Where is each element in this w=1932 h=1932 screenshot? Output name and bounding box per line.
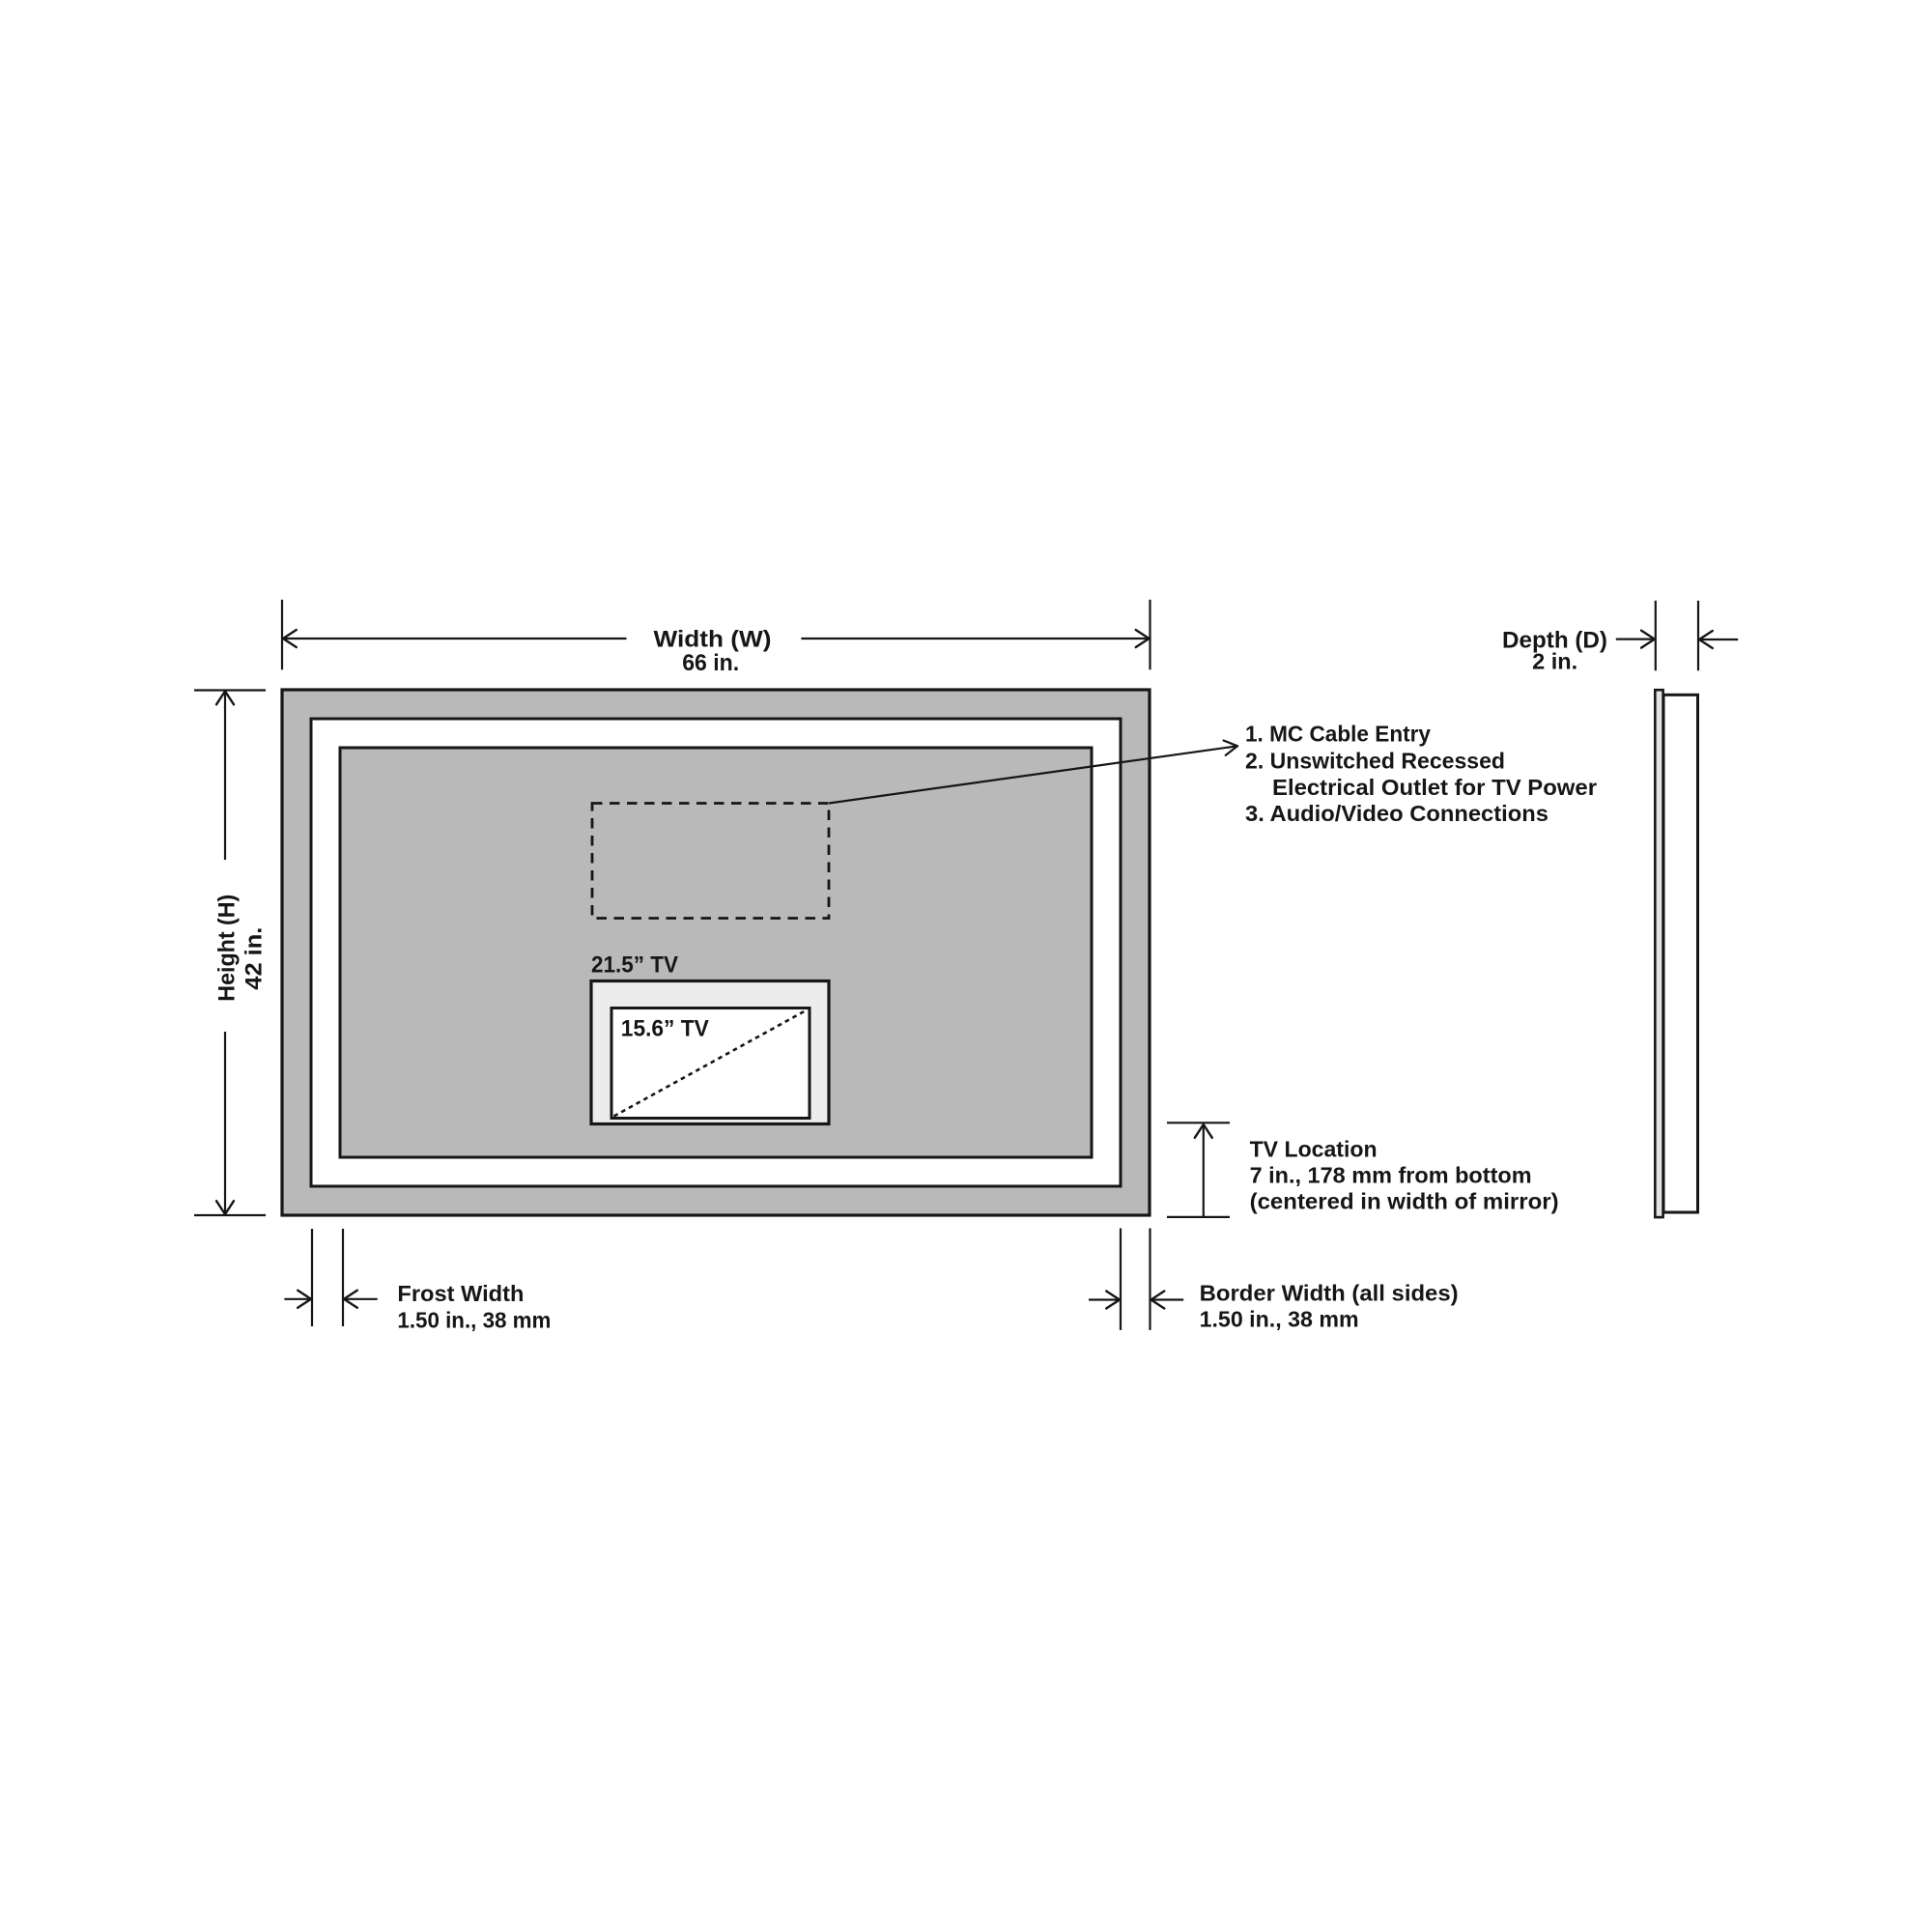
svg-text:2. Unswitched Recessed: 2. Unswitched Recessed (1245, 749, 1505, 774)
svg-text:7 in., 178 mm from bottom: 7 in., 178 mm from bottom (1250, 1163, 1532, 1188)
svg-text:1. MC Cable Entry: 1. MC Cable Entry (1245, 722, 1431, 747)
svg-text:Frost Width: Frost Width (397, 1281, 524, 1306)
svg-text:2 in.: 2 in. (1532, 649, 1577, 674)
svg-text:(centered in width of mirror): (centered in width of mirror) (1250, 1188, 1559, 1213)
svg-text:1.50 in., 38 mm: 1.50 in., 38 mm (397, 1308, 551, 1333)
svg-text:21.5” TV: 21.5” TV (591, 952, 678, 978)
svg-text:15.6” TV: 15.6” TV (621, 1016, 709, 1042)
svg-text:Electrical Outlet for TV Power: Electrical Outlet for TV Power (1272, 775, 1597, 800)
svg-text:3. Audio/Video Connections: 3. Audio/Video Connections (1245, 801, 1548, 826)
svg-text:66 in.: 66 in. (682, 650, 739, 676)
svg-text:1.50 in., 38 mm: 1.50 in., 38 mm (1200, 1307, 1359, 1332)
svg-text:Width (W): Width (W) (654, 627, 772, 653)
svg-text:TV Location: TV Location (1250, 1137, 1378, 1162)
svg-text:Border Width (all sides): Border Width (all sides) (1200, 1281, 1459, 1306)
